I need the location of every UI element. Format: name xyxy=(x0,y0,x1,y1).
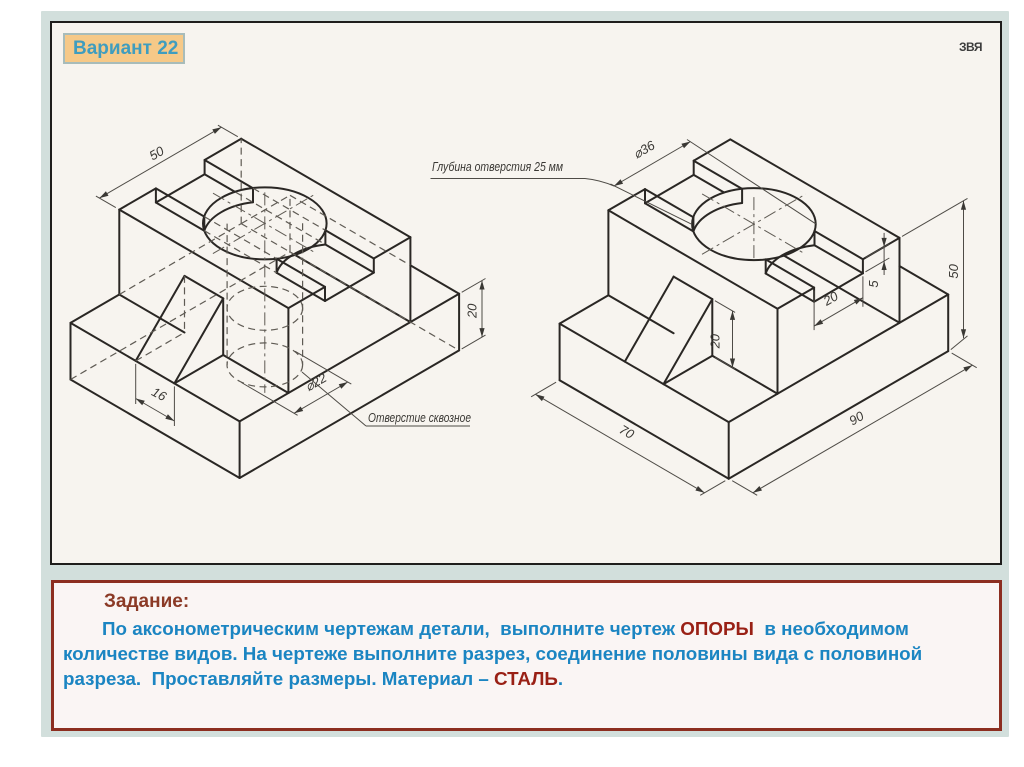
svg-text:90: 90 xyxy=(846,408,867,429)
svg-text:⌀36: ⌀36 xyxy=(631,137,658,162)
svg-text:20: 20 xyxy=(708,333,723,349)
svg-text:Отверстие сквозное: Отверстие сквозное xyxy=(368,411,471,425)
svg-text:20: 20 xyxy=(820,288,842,309)
svg-text:⌀22: ⌀22 xyxy=(302,370,329,395)
svg-text:16: 16 xyxy=(149,384,169,404)
svg-text:20: 20 xyxy=(465,303,480,319)
svg-text:Глубина отверстия 25 мм: Глубина отверстия 25 мм xyxy=(432,160,563,174)
svg-text:50: 50 xyxy=(946,263,961,278)
svg-text:5: 5 xyxy=(866,280,881,288)
